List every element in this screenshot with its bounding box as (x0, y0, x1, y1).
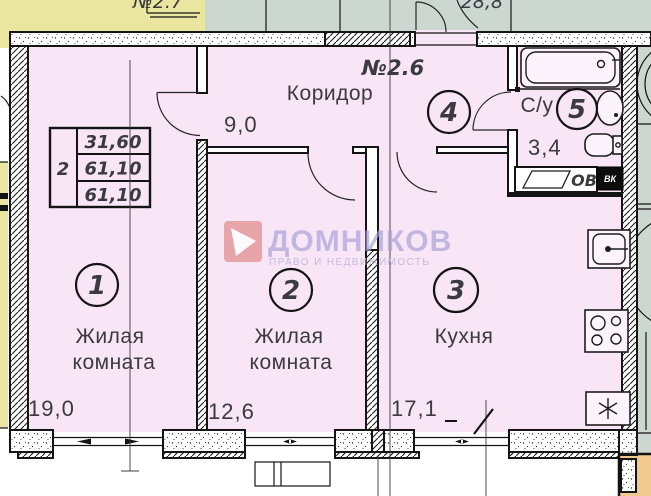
vent-ov-label: ОВ (571, 171, 597, 190)
apartment-number: №2.6 (361, 56, 424, 80)
watermark-subtitle: ПРАВО И НЕДВИЖИМОСТЬ (269, 257, 430, 268)
room-1-name-2: комната (73, 351, 156, 374)
toilet-icon (585, 134, 622, 156)
sink-icon (597, 91, 623, 125)
room-1-name-1: Жилая (76, 325, 145, 348)
watermark: ДОМНИКОВ ПРАВО И НЕДВИЖИМОСТЬ (224, 221, 452, 268)
table-area: 61,10 (85, 159, 142, 180)
room-3-name: Кухня (435, 325, 494, 348)
table-rooms-count: 2 (57, 159, 70, 180)
room-2-area: 12,6 (208, 399, 255, 424)
table-living-area: 31,60 (85, 132, 142, 153)
room-2-name-2: комната (250, 351, 333, 374)
room-5-area: 3,4 (528, 135, 562, 160)
fridge-asterisk-icon (586, 392, 630, 425)
room-4-number: 4 (439, 98, 458, 128)
kitchen-fixtures (585, 230, 630, 425)
vent-vk-label: ВК (604, 174, 617, 184)
room-4-area: 9,0 (224, 112, 258, 137)
room-1-number: 1 (88, 271, 106, 301)
room-3-area: 17,1 (391, 396, 438, 421)
stove-icon (585, 310, 628, 352)
left-wall (10, 46, 28, 430)
room-5-name: С/у (521, 94, 554, 117)
room-3-number: 3 (447, 276, 465, 306)
table-total-area: 61,10 (85, 185, 142, 206)
room-5-number: 5 (568, 95, 586, 125)
watermark-title: ДОМНИКОВ (268, 225, 452, 258)
neighbor-right-area: 28,8 (461, 0, 503, 13)
room-2-number: 2 (282, 276, 300, 306)
room-4-name: Коридор (287, 82, 373, 105)
neighbor-left-number: №2.7 (132, 0, 183, 13)
room-1-area: 19,0 (28, 396, 75, 421)
kitchen-sink-icon (588, 230, 630, 268)
floor-plan: 2 31,60 61,10 61,10 1 Жилая комната 19,0… (0, 0, 651, 496)
floor-plan-canvas: 2 31,60 61,10 61,10 1 Жилая комната 19,0… (0, 0, 651, 496)
room-2-name-1: Жилая (255, 325, 324, 348)
bathtub-icon (521, 48, 620, 87)
